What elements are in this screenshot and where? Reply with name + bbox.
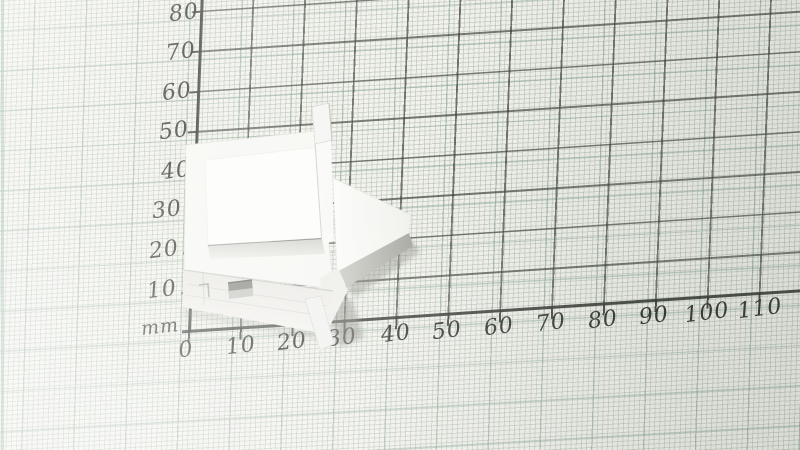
y-tick-label: 80 (168, 0, 201, 27)
x-tick-label: 90 (638, 302, 671, 330)
y-tick-label: 10 (146, 276, 179, 304)
y-tick-label: 60 (161, 78, 194, 106)
hand-drawn-grid (188, 0, 800, 332)
photo-scene: 80 70 60 50 40 30 20 10 mm 0 10 20 30 40… (0, 0, 800, 450)
y-tick-label: 30 (151, 196, 184, 224)
x-tick-label: 0 (177, 337, 195, 364)
paper-edge-line (1, 0, 4, 450)
x-tick-label: 80 (587, 306, 620, 334)
y-tick-label: 70 (165, 38, 198, 66)
x-tick-label: 60 (483, 313, 516, 341)
y-tick-label: 20 (148, 236, 181, 264)
axis-unit-label: mm (140, 314, 180, 340)
y-tick-label: 50 (158, 117, 191, 145)
x-tick-label: 10 (225, 332, 258, 360)
x-tick-label: 40 (380, 320, 413, 348)
pen-grid-lines (188, 0, 800, 332)
x-tick-label: 70 (535, 309, 568, 337)
x-tick-label: 30 (326, 324, 359, 352)
x-tick-label: 50 (431, 317, 464, 345)
x-tick-label: 20 (276, 328, 309, 356)
y-tick-label: 40 (160, 157, 193, 185)
